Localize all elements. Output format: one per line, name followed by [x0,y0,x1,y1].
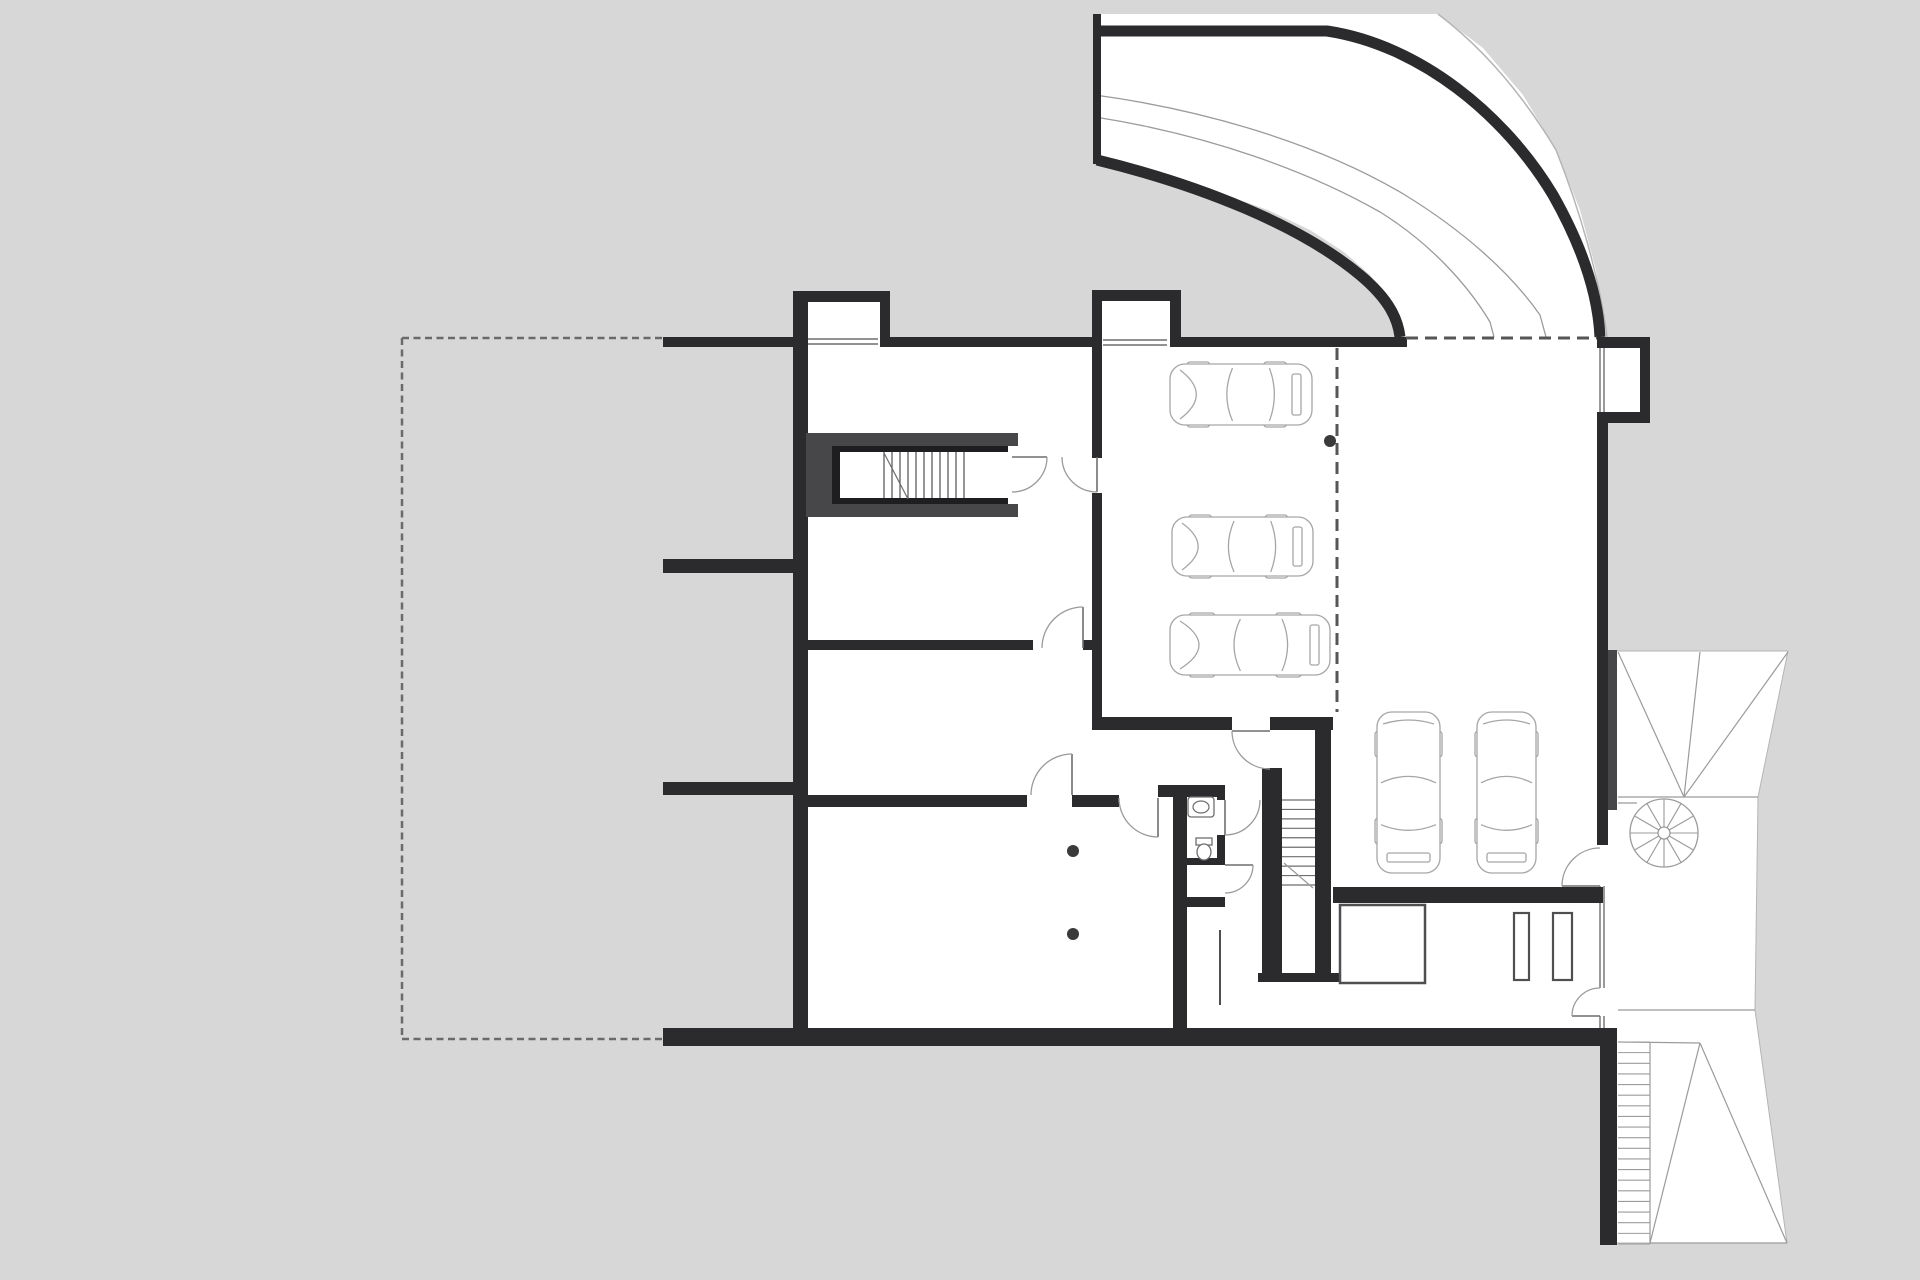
niche-wall [1187,897,1225,907]
shelf-unit-2 [1553,913,1572,980]
wing-wall-upper [663,559,800,573]
bumpout-interior [1604,348,1640,412]
car-garage-1 [1170,362,1312,427]
top-wall-mid [890,337,1092,347]
basement-stair-wall-right [1315,730,1331,973]
window-recess-wall-top [797,291,890,302]
car-garage-4 [1375,712,1442,873]
wing-wall-lower [663,782,800,795]
wc-toilet-bowl [1197,844,1211,860]
entry-recess-wall-right [1170,290,1181,347]
car-garage-2 [1172,515,1313,578]
bottom-wall [663,1028,1603,1046]
wc-wall-right-a [1217,785,1225,800]
basement-stair-wall-bottom [1258,973,1342,982]
partition-lower-a [808,795,1027,807]
bumpout-wall-right [1640,337,1650,423]
car-garage-5 [1475,712,1538,873]
window-recess-interior [807,302,880,339]
wc-sink-basin [1193,801,1209,813]
floor-plan-drawing [0,0,1920,1280]
closet-outline [1340,905,1425,983]
main-stair-door-gap [1008,446,1018,504]
floor-plan-page [0,0,1920,1280]
main-stair-shaft [840,452,1012,498]
wc-wall-right-b [1217,835,1225,862]
column-dot-garage [1324,435,1336,447]
window-recess-wall-right [880,291,890,347]
shelf-unit-1 [1514,913,1529,980]
spiral-stair-post [1658,827,1670,839]
top-wall-east [1181,337,1407,347]
driveway-left-wall [1093,14,1101,164]
entry-recess-wall-top [1092,290,1181,301]
east-wall [1597,423,1608,845]
garage-south-wall-east [1333,887,1603,903]
partition-lower-b [1072,795,1119,807]
wc-wall-left [1173,785,1187,1028]
garage-south-wall-west-a [1102,717,1232,730]
column-dot-room-1 [1067,845,1079,857]
partition-upper-b [1083,640,1092,650]
top-wall-west [663,337,797,347]
bumpout-wall-bottom [1597,412,1650,423]
garage-south-wall-west-b [1270,717,1333,730]
partition-upper-a [808,640,1033,650]
garage-west-wall-lower [1092,493,1102,730]
terrace-corner-post [1600,1028,1617,1245]
wc-wall-top [1158,785,1223,797]
garage-entry-recess-interior [1102,301,1170,339]
car-garage-3 [1170,613,1330,677]
west-wall [793,291,808,1037]
basement-stair-wall-left [1262,768,1282,973]
east-wall-inner-layer [1608,650,1617,810]
garage-west-wall-upper [1092,347,1102,458]
column-dot-room-2 [1067,928,1079,940]
